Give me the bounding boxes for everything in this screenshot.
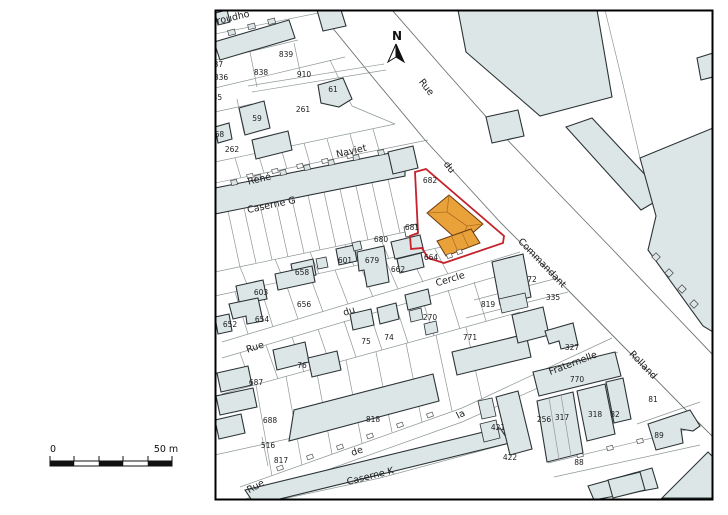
- parcel-number-568: 568: [210, 130, 225, 139]
- north-label: N: [392, 29, 402, 43]
- parcel-number-422: 422: [503, 453, 518, 462]
- parcel-number-654: 654: [255, 315, 270, 324]
- parcel-number-601: 601: [338, 256, 353, 265]
- building: [388, 146, 418, 174]
- building: [217, 366, 252, 392]
- building: [697, 53, 713, 80]
- scale-bar: 0 50 m: [50, 444, 178, 466]
- building: [215, 414, 245, 439]
- parcel-number-910: 910: [297, 70, 312, 79]
- parcel-number-839: 839: [279, 50, 294, 59]
- parcel-number-664: 664: [424, 253, 439, 262]
- parcel-number-75: 75: [361, 337, 371, 346]
- parcel-number-327: 327: [565, 343, 580, 352]
- parcel-number-89: 89: [654, 431, 664, 440]
- parcel-number-76: 76: [297, 361, 307, 370]
- parcel-number-262: 262: [225, 145, 240, 154]
- parcel-number-74: 74: [384, 333, 394, 342]
- building: [405, 289, 431, 310]
- parcel-number-681: 681: [405, 223, 420, 232]
- parcel-number-317: 317: [555, 413, 570, 422]
- building: [662, 452, 713, 498]
- parcel-number-335: 335: [546, 293, 561, 302]
- parcel-number-817: 817: [274, 456, 289, 465]
- building: [308, 351, 341, 377]
- building: [640, 128, 713, 332]
- building: [486, 110, 524, 143]
- parcel-number-72: 72: [527, 275, 537, 284]
- building: [458, 10, 612, 116]
- parcel-number-687: 687: [249, 378, 264, 387]
- building: [317, 10, 346, 31]
- parcel-number-770: 770: [570, 375, 585, 384]
- scale-zero-label: 0: [50, 444, 56, 455]
- street-label-rue: Rue: [245, 340, 266, 356]
- building: [357, 246, 389, 287]
- parcel-number-682: 682: [423, 176, 438, 185]
- parcel-number-658: 658: [295, 268, 310, 277]
- parcel-number-59: 59: [252, 114, 262, 123]
- building: [289, 374, 439, 441]
- parcel-number-82: 82: [610, 410, 620, 419]
- building: [608, 472, 645, 498]
- street-label-la: la: [455, 408, 468, 422]
- parcel-number-61: 61: [328, 85, 338, 94]
- parcel-number-81: 81: [648, 395, 658, 404]
- building: [316, 257, 328, 269]
- parcel-number-88: 88: [574, 458, 584, 467]
- parcel-number-838: 838: [254, 68, 269, 77]
- parcel-number-680: 680: [374, 235, 389, 244]
- parcel-number-818: 818: [366, 415, 381, 424]
- north-arrow-right-half: [396, 44, 404, 62]
- buildings: [214, 10, 713, 505]
- building: [424, 321, 438, 335]
- parcel-number-819: 819: [481, 300, 496, 309]
- parcel-number-256: 256: [537, 415, 552, 424]
- map-frame: [216, 11, 713, 500]
- building: [352, 241, 362, 251]
- building: [252, 131, 292, 159]
- parcel-number-656: 656: [297, 300, 312, 309]
- parcel-number-662: 662: [391, 265, 406, 274]
- street-label-rolland: Rolland: [627, 349, 659, 382]
- parcel-number-421: 421: [491, 423, 506, 432]
- parcel-number-318: 318: [588, 410, 603, 419]
- parcel-number-688: 688: [263, 416, 278, 425]
- parcel-number-771: 771: [463, 333, 478, 342]
- north-arrow-left-half: [388, 44, 396, 62]
- parcel-number-652: 652: [223, 320, 238, 329]
- scale-max-label: 50 m: [154, 444, 178, 455]
- building: [648, 410, 700, 450]
- building: [377, 303, 399, 324]
- parcel-number-261: 261: [296, 105, 311, 114]
- parcel-number-516: 516: [261, 441, 276, 450]
- building: [478, 398, 496, 419]
- parcel-number-270: 270: [423, 313, 438, 322]
- building: [537, 392, 583, 462]
- street-label-de: de: [350, 444, 365, 458]
- map-content: ProudhoRueduCommandantRollandRenéNavietC…: [208, 9, 713, 505]
- street-label-rue: Rue: [416, 77, 436, 98]
- cadastral-map-page: ProudhoRueduCommandantRollandRenéNavietC…: [0, 0, 728, 515]
- street-label-du: du: [441, 159, 457, 175]
- north-arrow: N: [388, 29, 404, 62]
- parcel-number-603: 603: [254, 288, 269, 297]
- street-label-cercle: Cercle: [434, 270, 466, 289]
- map-canvas: ProudhoRueduCommandantRollandRenéNavietC…: [0, 0, 728, 515]
- parcel-number-679: 679: [365, 256, 380, 265]
- building: [409, 308, 423, 322]
